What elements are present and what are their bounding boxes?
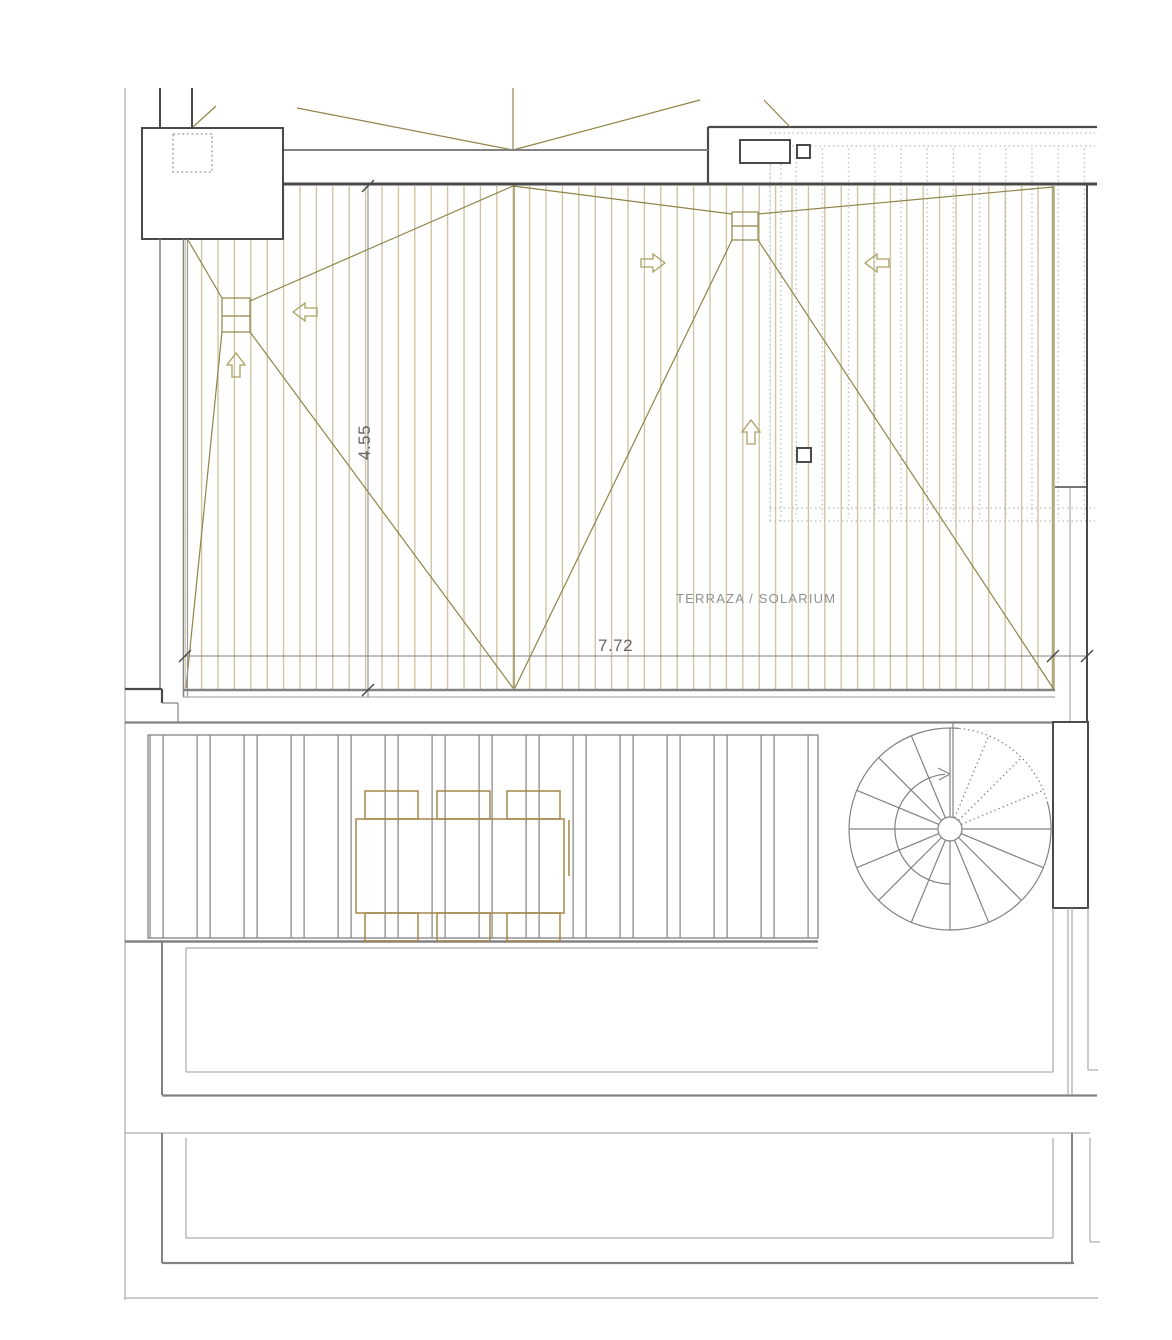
- dotted-projection-grid: [770, 133, 1095, 521]
- floor-plan-page: 4.55 7.72 TERRAZA / SOLARIUM: [0, 0, 1172, 1340]
- floor-plan-canvas: 4.55 7.72 TERRAZA / SOLARIUM: [0, 0, 1172, 1340]
- dim-height-label: 4.55: [355, 425, 374, 460]
- dim-width-label: 7.72: [598, 636, 633, 655]
- vent-square-top: [797, 145, 810, 158]
- stair-center-post: [938, 817, 962, 841]
- access-box: [142, 88, 283, 239]
- roof-hatch: [740, 140, 790, 163]
- stair-wall: [1053, 722, 1088, 908]
- lower-floors-outline: [125, 908, 1100, 1298]
- room-label: TERRAZA / SOLARIUM: [676, 591, 836, 606]
- spiral-staircase: [849, 722, 1088, 930]
- vent-square-mid: [797, 448, 811, 462]
- railing-band: [148, 735, 818, 938]
- lower-terrace: [125, 689, 1053, 942]
